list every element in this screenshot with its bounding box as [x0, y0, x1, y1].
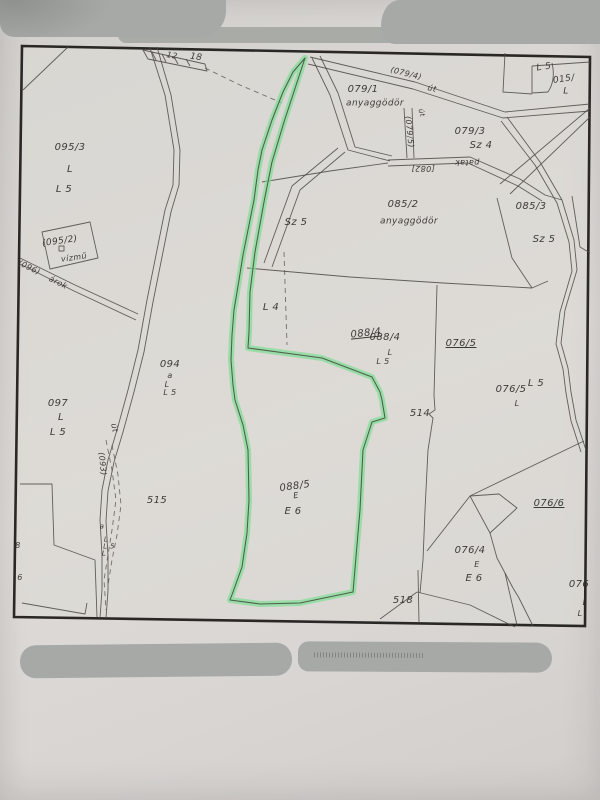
- redaction-mark-top-strip: [118, 27, 398, 43]
- map-label: út: [417, 108, 426, 118]
- map-label: 094: [160, 360, 180, 370]
- map-label: Sz 4: [470, 141, 493, 151]
- map-label: L: [583, 599, 588, 607]
- map-label: 076/4: [455, 546, 486, 556]
- map-label: L 5: [50, 428, 66, 438]
- map-labels-layer: 1218095/3LL 5(095/2)vízmű(096)árok097LL …: [0, 0, 600, 800]
- map-label: 12: [166, 51, 178, 61]
- map-label: út: [427, 84, 438, 94]
- map-label: 6: [17, 574, 23, 582]
- map-label: L: [58, 413, 64, 423]
- map-label: 514: [410, 409, 430, 419]
- map-label: anyaggödör: [346, 100, 404, 109]
- map-label: L 5: [56, 185, 72, 195]
- map-label: anyaggödör: [380, 218, 438, 227]
- map-label: 076/6: [534, 499, 565, 509]
- map-label: L 5: [376, 358, 389, 366]
- map-label: 076/5: [496, 385, 527, 395]
- map-label: 095/3: [55, 143, 86, 153]
- map-label: vízmű: [61, 252, 88, 264]
- map-label: L: [67, 165, 73, 175]
- illegible-fine-print: [314, 652, 424, 658]
- map-label: 076/5: [446, 339, 477, 349]
- map-label: a: [167, 372, 172, 380]
- map-label: 8: [15, 542, 21, 550]
- map-label: L 5: [528, 379, 544, 389]
- map-label: E 6: [284, 507, 301, 517]
- map-label: L 5: [163, 389, 176, 397]
- map-label: L: [388, 349, 393, 357]
- map-label: L 4: [263, 303, 279, 313]
- map-label: (079/5): [403, 116, 414, 149]
- map-label: Sz 5: [285, 218, 308, 228]
- map-label: L: [102, 551, 106, 558]
- map-label: a: [100, 524, 105, 531]
- map-label: (096): [17, 259, 42, 276]
- map-label: Sz 5: [533, 235, 556, 245]
- map-label: 518: [393, 596, 413, 606]
- map-label: E: [293, 492, 300, 501]
- map-label: (079/4): [389, 66, 422, 82]
- map-label: út: [109, 423, 119, 433]
- map-label: 515: [147, 496, 167, 506]
- map-label: (093): [97, 452, 107, 476]
- redaction-mark-bottom-right: [298, 641, 552, 672]
- map-label: L 5: [536, 63, 552, 74]
- map-label: 076: [569, 580, 589, 590]
- map-label: 18: [189, 53, 202, 64]
- map-label: 079/1: [348, 85, 379, 95]
- map-label: 097: [48, 399, 68, 409]
- map-label: E 6: [465, 574, 482, 584]
- map-label: E: [474, 561, 479, 569]
- redaction-mark-top-right: [381, 0, 600, 44]
- map-label: 085/3: [516, 202, 547, 212]
- map-label: patak: [455, 158, 480, 166]
- map-label: árok: [48, 275, 69, 291]
- scanned-map-photo: 1218095/3LL 5(095/2)vízmű(096)árok097LL …: [0, 0, 600, 800]
- map-label: L: [563, 88, 568, 97]
- map-label: 015/: [553, 74, 576, 86]
- map-label: (095/2): [42, 235, 79, 249]
- map-label: L: [515, 400, 520, 408]
- map-label: L: [578, 610, 583, 618]
- map-label: 079/3: [455, 127, 486, 137]
- redaction-mark-bottom-left: [20, 643, 292, 679]
- map-label: [082]: [411, 164, 435, 172]
- map-label: 088/4: [370, 333, 401, 343]
- map-label: 085/2: [388, 200, 419, 210]
